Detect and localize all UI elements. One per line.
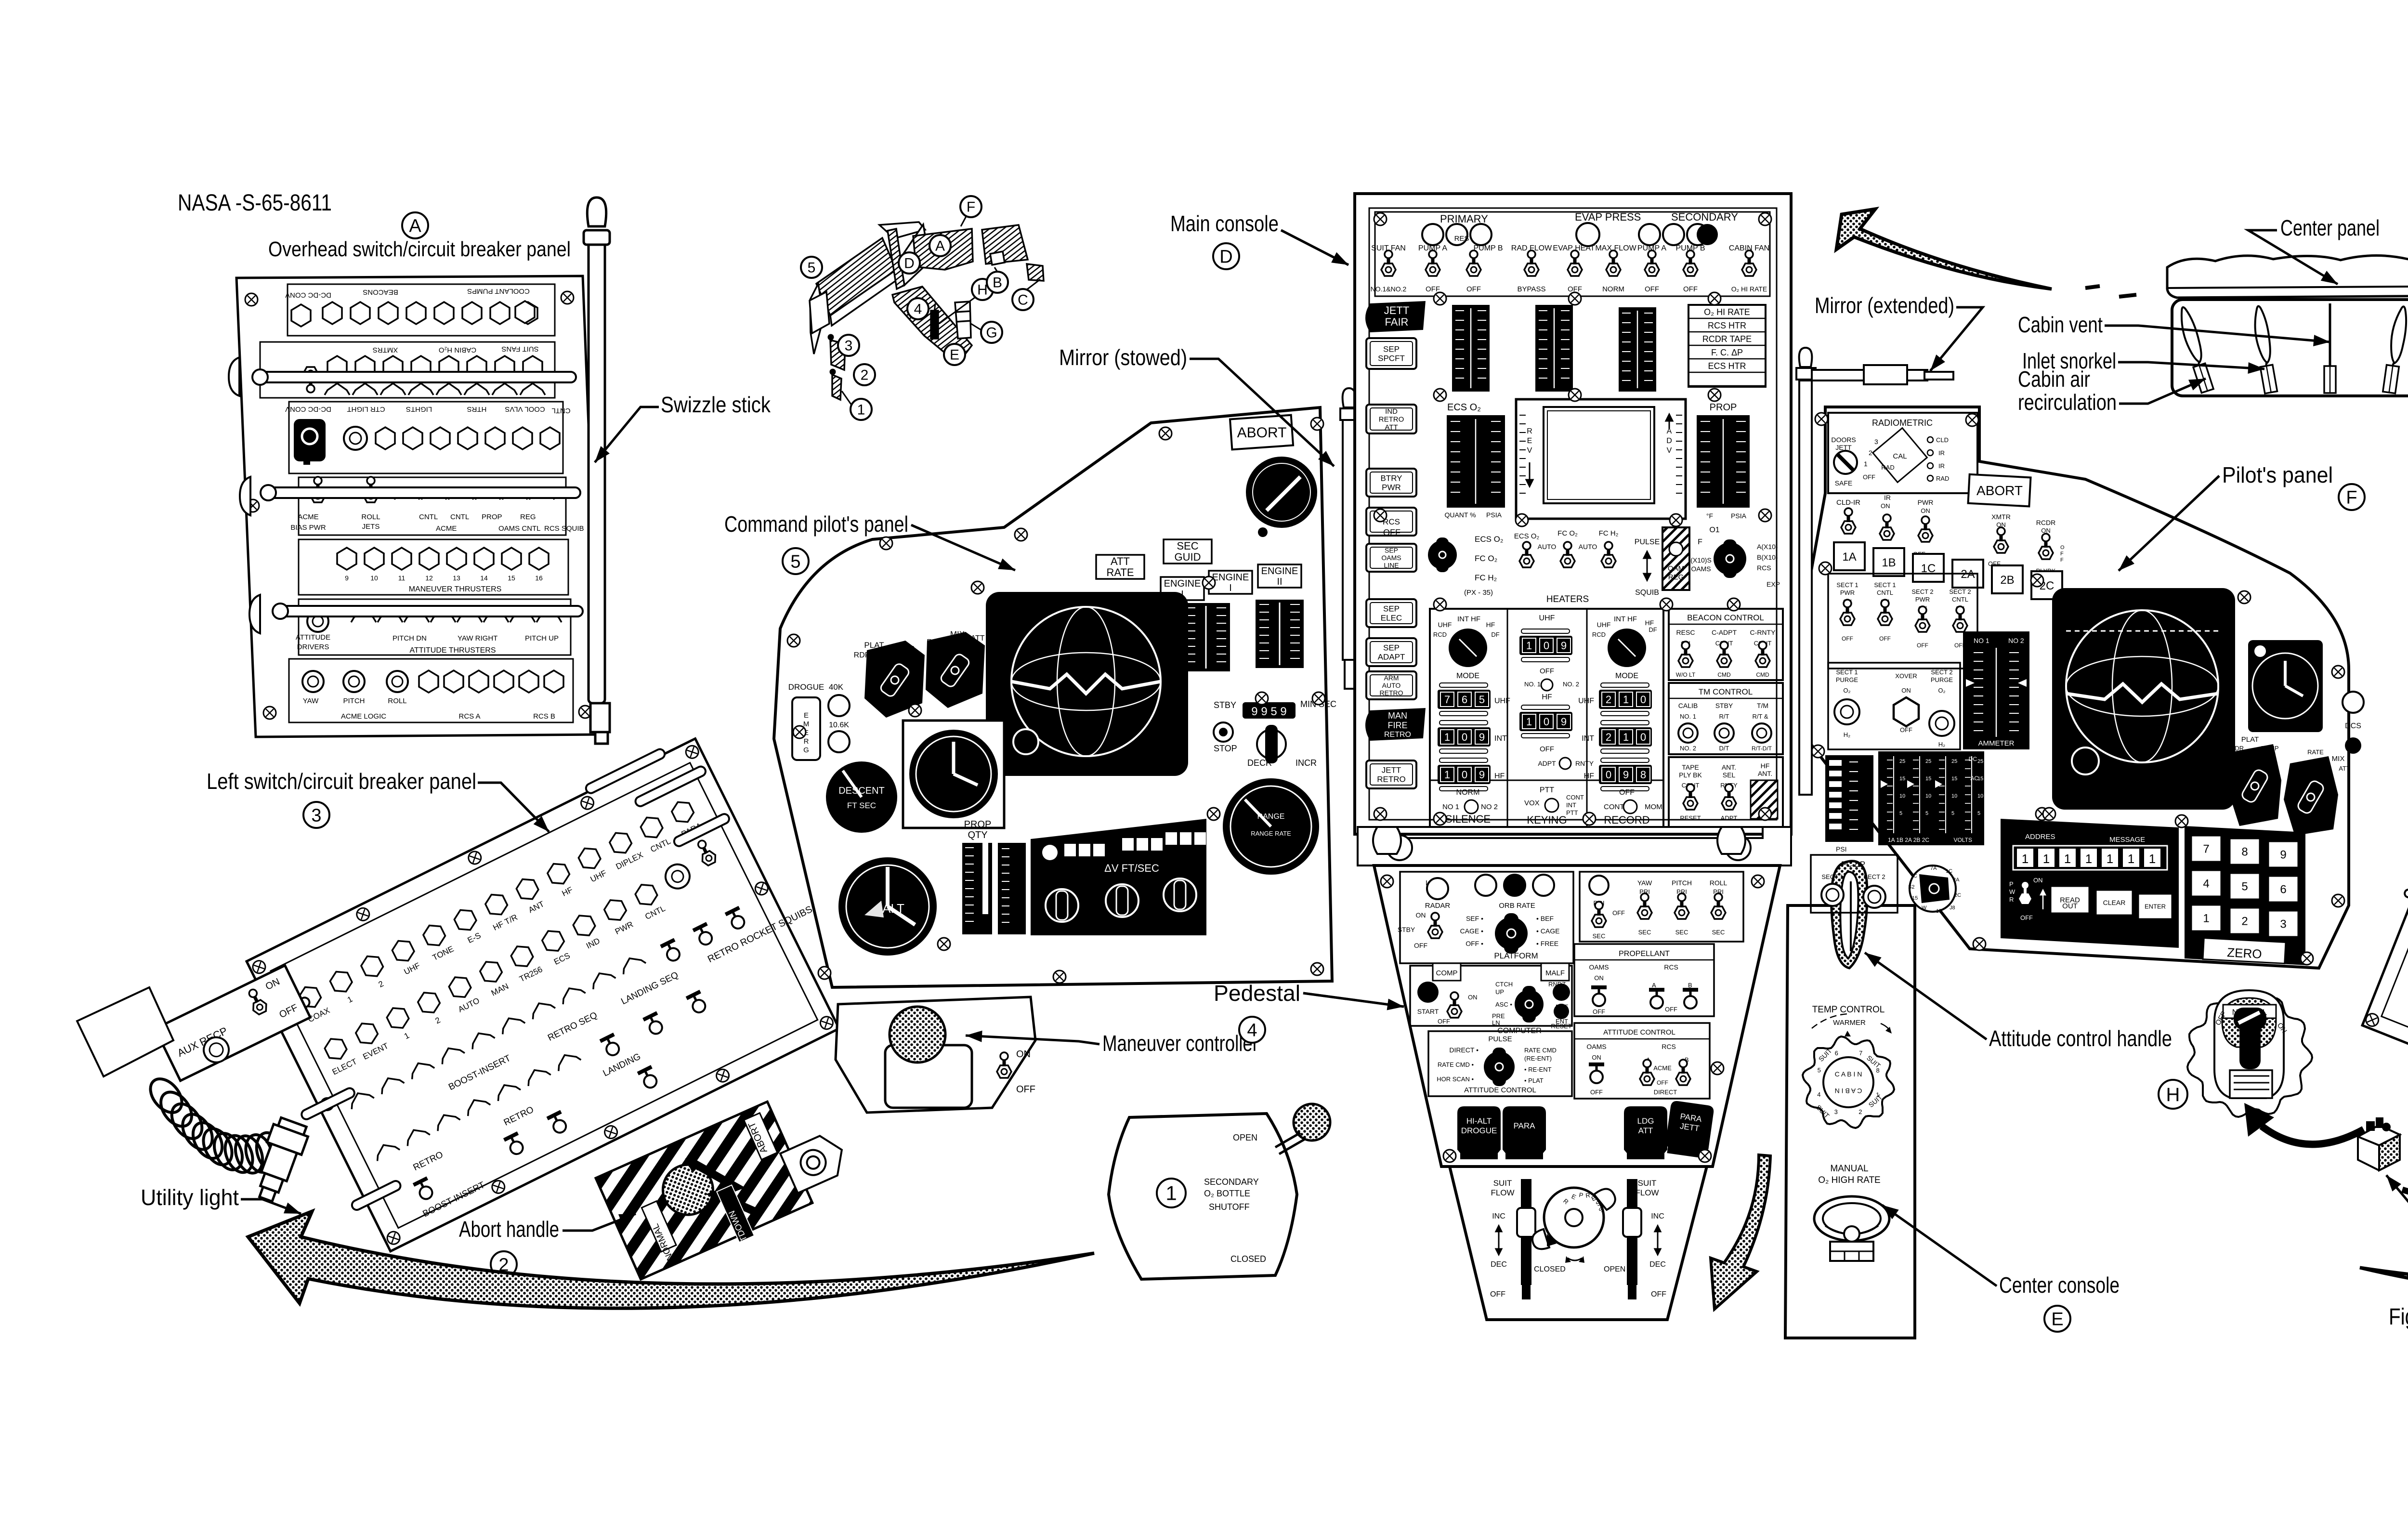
svg-text:OAMS: OAMS <box>1589 963 1609 971</box>
svg-text:DESCENT: DESCENT <box>838 786 885 796</box>
svg-text:STBY: STBY <box>1715 702 1733 709</box>
svg-text:PITCH: PITCH <box>1672 879 1692 887</box>
svg-text:6: 6 <box>1835 1049 1838 1057</box>
svg-text:PLAT: PLAT <box>2241 735 2259 744</box>
svg-text:PUMP A: PUMP A <box>1637 244 1667 252</box>
svg-text:OFF: OFF <box>1665 1006 1677 1013</box>
svg-text:FLOW: FLOW <box>1635 1188 1659 1197</box>
svg-text:1: 1 <box>2128 852 2134 866</box>
svg-text:ADPT: ADPT <box>1538 760 1556 767</box>
svg-text:4: 4 <box>1817 1091 1820 1098</box>
svg-text:1A: 1A <box>1842 551 1856 564</box>
svg-text:CNTL: CNTL <box>551 406 570 415</box>
svg-text:SEP: SEP <box>1385 547 1398 554</box>
svg-text:UHF: UHF <box>1539 614 1555 622</box>
svg-text:ATTITUDE CONTROL: ATTITUDE CONTROL <box>1603 1028 1675 1036</box>
svg-text:ON: ON <box>1416 911 1426 919</box>
svg-text:OFF: OFF <box>1657 1079 1668 1086</box>
svg-text:NO. 2: NO. 2 <box>1680 745 1696 752</box>
svg-text:DEC: DEC <box>1491 1260 1507 1269</box>
svg-text:BTRY: BTRY <box>1380 474 1402 483</box>
svg-text:OUT: OUT <box>2062 902 2078 910</box>
svg-text:2: 2 <box>861 367 869 383</box>
svg-text:INCR: INCR <box>1296 758 1317 768</box>
svg-text:C-RNTY: C-RNTY <box>1750 629 1776 636</box>
svg-text:AUTO: AUTO <box>1579 543 1597 551</box>
svg-text:0: 0 <box>1544 640 1549 652</box>
svg-text:recirculation: recirculation <box>2018 390 2117 415</box>
svg-text:SUIT FAN: SUIT FAN <box>1371 244 1406 252</box>
svg-text:ECS O₂: ECS O₂ <box>1475 535 1504 544</box>
svg-text:ZERO: ZERO <box>2227 945 2263 961</box>
svg-text:1: 1 <box>1526 640 1532 652</box>
svg-text:H₂: H₂ <box>1844 731 1850 738</box>
svg-text:PURGE: PURGE <box>1931 676 1953 683</box>
svg-text:OFF: OFF <box>1383 528 1400 538</box>
svg-text:7: 7 <box>1444 694 1450 706</box>
svg-text:MANUAL: MANUAL <box>1830 1164 1868 1174</box>
svg-text:1B: 1B <box>1882 556 1896 569</box>
svg-text:DROGUE: DROGUE <box>788 682 824 692</box>
svg-text:O: O <box>2060 545 2065 551</box>
svg-text:SECT 1: SECT 1 <box>1821 873 1843 880</box>
svg-text:12: 12 <box>425 574 433 582</box>
svg-text:YAW: YAW <box>303 697 319 705</box>
svg-text:RANGE RATE: RANGE RATE <box>1251 830 1291 837</box>
svg-text:BEACON CONTROL: BEACON CONTROL <box>1687 613 1764 622</box>
svg-text:ON: ON <box>1881 502 1890 510</box>
svg-text:13: 13 <box>453 574 460 582</box>
svg-text:1: 1 <box>2085 852 2092 866</box>
svg-text:OAMS: OAMS <box>1691 565 1711 573</box>
svg-text:O₂ HIGH RATE: O₂ HIGH RATE <box>1818 1175 1880 1185</box>
svg-text:D: D <box>1219 247 1232 267</box>
svg-text:ATTITUDE: ATTITUDE <box>296 633 330 642</box>
svg-text:IND: IND <box>1385 407 1398 416</box>
svg-text:DRIVERS: DRIVERS <box>297 643 329 651</box>
svg-text:AUTO: AUTO <box>1538 543 1557 551</box>
svg-text:1A 1B 2A 2B 2C: 1A 1B 2A 2B 2C <box>1888 837 1929 843</box>
svg-text:1: 1 <box>1444 769 1450 781</box>
svg-text:OFF: OFF <box>1842 635 1853 642</box>
svg-text:REG: REG <box>1668 573 1684 581</box>
svg-text:ABORT: ABORT <box>1237 425 1287 441</box>
svg-text:5: 5 <box>1977 811 1980 816</box>
svg-text:16: 16 <box>535 574 543 582</box>
svg-text:Cabin vent: Cabin vent <box>2018 312 2103 337</box>
svg-text:XMTR: XMTR <box>1991 513 2011 521</box>
svg-text:ATT: ATT <box>1638 1126 1653 1135</box>
svg-text:OFF •: OFF • <box>1466 940 1483 947</box>
svg-text:1: 1 <box>857 402 865 418</box>
svg-text:CNTL: CNTL <box>1877 589 1893 596</box>
svg-text:ANT.: ANT. <box>1722 763 1736 771</box>
svg-text:FAIR: FAIR <box>1385 316 1409 328</box>
svg-text:AUTO: AUTO <box>1382 682 1401 689</box>
svg-text:RETRO: RETRO <box>1384 731 1411 739</box>
svg-text:CMD: CMD <box>1717 671 1731 678</box>
svg-text:PUMP B: PUMP B <box>1675 244 1705 252</box>
svg-text:Utility light: Utility light <box>141 1185 239 1210</box>
svg-text:KEYING: KEYING <box>1527 814 1567 826</box>
svg-text:INC: INC <box>1492 1212 1505 1220</box>
svg-text:0: 0 <box>1606 769 1611 781</box>
svg-text:BIAS PWR: BIAS PWR <box>290 524 326 532</box>
svg-text:TEMP CONTROL: TEMP CONTROL <box>1812 1005 1885 1015</box>
svg-text:CLD-IR: CLD-IR <box>1836 498 1860 507</box>
svg-text:MODE: MODE <box>1456 672 1479 680</box>
svg-text:OFF: OFF <box>1645 285 1659 293</box>
svg-text:RATE: RATE <box>927 638 946 646</box>
svg-text:PULSE: PULSE <box>1488 1035 1512 1043</box>
svg-text:PUMP B: PUMP B <box>1473 244 1503 252</box>
svg-text:SEF •: SEF • <box>1466 915 1483 922</box>
svg-text:ARM: ARM <box>1384 674 1399 682</box>
svg-text:XOVER: XOVER <box>1895 672 1917 680</box>
svg-text:GUID: GUID <box>1175 551 1201 563</box>
svg-text:C: C <box>1913 873 1917 879</box>
svg-text:G: G <box>803 746 809 754</box>
svg-text:OFF: OFF <box>1540 667 1554 675</box>
svg-text:ATT: ATT <box>1385 423 1398 432</box>
svg-text:DCS: DCS <box>2345 722 2361 730</box>
svg-text:1: 1 <box>2022 852 2028 866</box>
svg-text:SEC: SEC <box>1712 929 1725 936</box>
svg-text:10: 10 <box>1925 793 1931 799</box>
svg-text:PROP: PROP <box>964 819 992 830</box>
svg-text:DROGUE: DROGUE <box>1461 1126 1497 1135</box>
svg-text:MIX: MIX <box>950 629 965 639</box>
svg-text:B(X10): B(X10) <box>1757 553 1778 561</box>
svg-text:NO. 1: NO. 1 <box>1680 713 1696 720</box>
svg-text:RETRO: RETRO <box>1380 689 1403 696</box>
svg-text:9: 9 <box>1561 716 1567 728</box>
svg-text:3: 3 <box>845 338 853 354</box>
svg-text:EXP: EXP <box>1767 580 1780 588</box>
svg-text:PITCH DN: PITCH DN <box>393 634 427 642</box>
svg-text:ADAPT: ADAPT <box>1378 652 1405 661</box>
svg-text:STBY: STBY <box>1398 926 1415 933</box>
svg-text:LIGHTS: LIGHTS <box>406 405 432 413</box>
svg-text:25: 25 <box>1925 759 1931 764</box>
svg-text:Command pilot's panel: Command pilot's panel <box>724 511 908 537</box>
svg-text:9: 9 <box>1561 640 1567 652</box>
svg-text:H₂: H₂ <box>1938 741 1945 748</box>
svg-text:VOX: VOX <box>1524 799 1540 807</box>
svg-text:15: 15 <box>1925 776 1931 782</box>
svg-text:UHF: UHF <box>1578 697 1594 705</box>
svg-text:R/T &: R/T & <box>1753 713 1768 720</box>
svg-text:W/O LT: W/O LT <box>1676 671 1696 678</box>
svg-text:PROP: PROP <box>482 513 502 521</box>
svg-text:CNTL: CNTL <box>450 513 469 521</box>
svg-text:IR: IR <box>1884 494 1891 501</box>
svg-text:OFF: OFF <box>1863 473 1875 481</box>
svg-text:2: 2 <box>1606 694 1611 706</box>
svg-text:XMTRS: XMTRS <box>373 346 398 354</box>
svg-text:RESET: RESET <box>1680 814 1701 822</box>
svg-text:COMP: COMP <box>1436 969 1458 977</box>
svg-text:RNTY: RNTY <box>1575 760 1594 767</box>
svg-text:ENTER: ENTER <box>2145 903 2166 910</box>
svg-text:ADDRES: ADDRES <box>2025 833 2055 841</box>
svg-text:SECONDARY: SECONDARY <box>1204 1177 1259 1187</box>
svg-text:SEL: SEL <box>1723 771 1736 779</box>
svg-text:9: 9 <box>1479 769 1485 781</box>
svg-text:FC O₂: FC O₂ <box>1557 529 1578 538</box>
svg-text:P: P <box>2009 880 2014 888</box>
svg-text:9: 9 <box>2280 848 2286 861</box>
svg-text:OFF: OFF <box>1590 1088 1603 1096</box>
svg-text:PARA: PARA <box>1513 1121 1535 1130</box>
svg-text:OFF: OFF <box>1490 1290 1505 1298</box>
svg-text:FLOW: FLOW <box>1491 1188 1514 1197</box>
svg-text:DOORS: DOORS <box>1831 436 1856 444</box>
svg-text:PLAT: PLAT <box>864 641 884 650</box>
svg-text:UHF: UHF <box>1597 621 1611 629</box>
svg-text:OFF: OFF <box>1540 745 1554 753</box>
svg-text:ABORT: ABORT <box>1976 483 2023 498</box>
svg-text:ON: ON <box>1921 507 1930 514</box>
svg-text:ATTITUDE CONTROL: ATTITUDE CONTROL <box>1464 1086 1536 1094</box>
svg-text:ON: ON <box>1594 974 1604 982</box>
svg-text:(PX - 35): (PX - 35) <box>1464 589 1493 597</box>
svg-text:RCD: RCD <box>1592 631 1606 638</box>
svg-text:10: 10 <box>370 574 378 582</box>
svg-text:NO 1: NO 1 <box>1974 637 1989 644</box>
svg-text:F: F <box>2060 557 2064 563</box>
svg-text:RAD: RAD <box>1936 475 1949 482</box>
svg-text:TAPE: TAPE <box>1682 763 1699 771</box>
svg-text:SEP: SEP <box>1383 643 1400 653</box>
svg-text:HF: HF <box>1584 772 1595 780</box>
svg-text:RESC: RESC <box>1676 629 1695 636</box>
svg-text:NO 2: NO 2 <box>1481 803 1498 811</box>
svg-text:F: F <box>1698 538 1702 546</box>
svg-text:Maneuver controller: Maneuver controller <box>1102 1031 1258 1056</box>
svg-text:J8: J8 <box>1950 905 1955 911</box>
svg-text:OFF: OFF <box>1651 1290 1666 1298</box>
svg-text:ROLL: ROLL <box>1710 879 1727 887</box>
svg-text:10: 10 <box>1899 793 1905 799</box>
svg-text:W: W <box>2009 888 2015 895</box>
svg-text:9: 9 <box>345 574 349 582</box>
svg-text:SPCFT: SPCFT <box>1378 354 1405 363</box>
svg-text:3: 3 <box>1834 1108 1838 1115</box>
svg-text:MESSAGE: MESSAGE <box>2109 836 2145 844</box>
svg-text:B: B <box>1688 982 1692 989</box>
svg-text:2C: 2C <box>1954 892 1961 898</box>
svg-text:ROLL: ROLL <box>388 697 406 705</box>
svg-text:COMP: COMP <box>891 645 915 653</box>
svg-text:10: 10 <box>1977 793 1983 799</box>
svg-text:1: 1 <box>1444 731 1450 743</box>
svg-text:ENGINE: ENGINE <box>1261 566 1298 577</box>
svg-text:SEC: SEC <box>1177 540 1198 552</box>
svg-text:PURGE: PURGE <box>1836 676 1858 683</box>
svg-text:OFF: OFF <box>1414 942 1427 949</box>
svg-text:Pedestal: Pedestal <box>1214 981 1300 1006</box>
svg-text:R/T-D/T: R/T-D/T <box>1752 745 1772 752</box>
svg-text:PRE: PRE <box>1492 1012 1505 1020</box>
svg-text:(RE-ENT): (RE-ENT) <box>1524 1055 1552 1062</box>
svg-text:JETT: JETT <box>1384 304 1410 316</box>
svg-text:RESET: RESET <box>1551 1023 1571 1030</box>
svg-text:PTT: PTT <box>1540 786 1554 794</box>
svg-text:PLY BK: PLY BK <box>1679 771 1702 779</box>
svg-text:1: 1 <box>1623 731 1629 743</box>
svg-text:HF: HF <box>1494 772 1505 780</box>
svg-text:O₂: O₂ <box>1938 687 1945 694</box>
svg-text:BYPASS: BYPASS <box>1518 285 1546 293</box>
svg-text:RES: RES <box>1454 235 1469 243</box>
svg-text:NO.1&NO.2: NO.1&NO.2 <box>1371 285 1407 293</box>
svg-text:CABIN H₂O: CABIN H₂O <box>439 346 476 354</box>
svg-text:PSIA: PSIA <box>1731 512 1747 520</box>
svg-text:5: 5 <box>1951 811 1954 816</box>
svg-text:RAD: RAD <box>1881 464 1894 471</box>
svg-text:CONT: CONT <box>1566 794 1584 801</box>
svg-text:0: 0 <box>1640 694 1646 706</box>
svg-text:15: 15 <box>1912 895 1918 901</box>
svg-text:YAW RIGHT: YAW RIGHT <box>458 634 497 642</box>
svg-text:SAFE: SAFE <box>1835 479 1853 487</box>
svg-text:HOR SCAN •: HOR SCAN • <box>1437 1075 1474 1083</box>
svg-text:1: 1 <box>1526 716 1532 728</box>
svg-text:O₂: O₂ <box>1843 687 1850 694</box>
svg-text:1B: 1B <box>1936 908 1942 914</box>
svg-text:0: 0 <box>1640 731 1646 743</box>
svg-text:9 9 5 9: 9 9 5 9 <box>1251 705 1286 718</box>
svg-text:C A B I N: C A B I N <box>1835 1087 1862 1095</box>
svg-text:SILENCE: SILENCE <box>1445 813 1491 825</box>
svg-text:RCS: RCS <box>1662 1043 1676 1050</box>
svg-text:SECT 1: SECT 1 <box>1874 581 1896 589</box>
svg-text:• CAGE: • CAGE <box>1536 927 1559 935</box>
svg-text:UHF: UHF <box>1438 621 1452 629</box>
svg-text:RATE: RATE <box>2307 748 2324 756</box>
svg-text:DECR: DECR <box>1247 758 1272 768</box>
svg-text:SUIT: SUIT <box>1493 1179 1512 1188</box>
svg-text:LDG: LDG <box>1637 1116 1654 1126</box>
svg-text:OPEN: OPEN <box>1604 1265 1625 1273</box>
svg-text:OAMS: OAMS <box>1586 1043 1606 1050</box>
svg-text:5: 5 <box>1818 1066 1821 1074</box>
svg-text:Attitude control handle: Attitude control handle <box>1989 1026 2172 1051</box>
svg-text:RDR: RDR <box>2230 745 2244 752</box>
svg-text:HTRS: HTRS <box>467 405 487 413</box>
svg-text:D: D <box>904 256 915 272</box>
svg-text:OFF: OFF <box>1683 285 1698 293</box>
svg-text:PSIA: PSIA <box>1486 511 1502 519</box>
svg-text:5: 5 <box>2241 880 2248 893</box>
svg-text:JETT: JETT <box>1382 766 1401 775</box>
svg-text:V: V <box>1527 446 1532 455</box>
svg-text:NO 1: NO 1 <box>1442 803 1459 811</box>
svg-text:O₂ BOTTLE: O₂ BOTTLE <box>1204 1189 1250 1198</box>
svg-text:1: 1 <box>2149 852 2156 866</box>
svg-text:15: 15 <box>508 574 515 582</box>
svg-text:DF: DF <box>1491 631 1499 638</box>
svg-text:F: F <box>967 199 975 215</box>
svg-text:RATE CMD: RATE CMD <box>1524 1047 1557 1054</box>
svg-text:CAL: CAL <box>1893 452 1907 460</box>
svg-text:4: 4 <box>2203 877 2209 890</box>
svg-text:SECT 2: SECT 2 <box>1911 588 1933 595</box>
svg-text:CLOSED: CLOSED <box>1534 1265 1566 1273</box>
svg-text:PLATFORM: PLATFORM <box>1494 951 1538 960</box>
svg-text:FC H₂: FC H₂ <box>1475 573 1497 582</box>
svg-text:MALF: MALF <box>1545 969 1565 977</box>
svg-text:PSI: PSI <box>1836 845 1847 853</box>
svg-text:(X10)S: (X10)S <box>1690 556 1712 564</box>
svg-text:A: A <box>1652 982 1656 989</box>
svg-text:NO. 2: NO. 2 <box>1563 681 1579 688</box>
svg-text:14: 14 <box>480 574 488 582</box>
svg-text:0: 0 <box>1462 769 1467 781</box>
svg-text:1: 1 <box>1876 1091 1879 1099</box>
svg-text:ATTITUDE THRUSTERS: ATTITUDE THRUSTERS <box>410 646 496 655</box>
svg-text:OFF: OFF <box>1917 642 1928 649</box>
svg-text:ENGINE: ENGINE <box>1164 578 1201 589</box>
svg-text:1: 1 <box>1165 1182 1177 1205</box>
svg-text:F. C. ΔP: F. C. ΔP <box>1711 348 1743 357</box>
svg-text:Figure 3.1-8. - Spacecraft con: Figure 3.1-8. - Spacecraft controls and … <box>2389 1304 2408 1330</box>
svg-text:BEACONS: BEACONS <box>363 288 398 296</box>
svg-text:2B: 2B <box>2000 574 2014 587</box>
svg-text:RCS: RCS <box>1757 564 1771 572</box>
svg-text:ATT: ATT <box>970 634 984 642</box>
svg-text:RECORD: RECORD <box>1604 814 1649 826</box>
svg-text:Overhead switch/circuit breake: Overhead switch/circuit breaker panel <box>268 237 571 261</box>
svg-text:CNTL: CNTL <box>419 513 438 521</box>
svg-text:RDR: RDR <box>854 651 871 659</box>
svg-text:CABIN FAN: CABIN FAN <box>1729 244 1769 252</box>
svg-text:RATE CMD •: RATE CMD • <box>1438 1061 1474 1068</box>
svg-text:E: E <box>2051 1309 2063 1329</box>
svg-text:15: 15 <box>1951 776 1957 782</box>
svg-text:RCDR TAPE: RCDR TAPE <box>1702 334 1752 344</box>
svg-text:CONT: CONT <box>1604 803 1624 811</box>
svg-text:SEP: SEP <box>1383 604 1400 614</box>
svg-text:CMD: CMD <box>1756 671 1769 678</box>
svg-text:3: 3 <box>311 805 321 826</box>
svg-text:11: 11 <box>398 574 406 582</box>
svg-text:25: 25 <box>1899 759 1905 764</box>
svg-text:OFF: OFF <box>1466 285 1481 293</box>
svg-text:STOP: STOP <box>1214 744 1237 753</box>
svg-text:1: 1 <box>1864 460 1868 468</box>
svg-text:PITCH: PITCH <box>343 697 365 705</box>
svg-text:R: R <box>804 737 809 746</box>
svg-text:OAMS: OAMS <box>1381 554 1401 562</box>
svg-text:PULSE: PULSE <box>1635 538 1660 546</box>
svg-text:RCS SQUIB: RCS SQUIB <box>544 524 584 533</box>
svg-text:DEC: DEC <box>1649 1260 1666 1269</box>
svg-text:CLOSED: CLOSED <box>1230 1254 1266 1264</box>
svg-text:4: 4 <box>914 302 922 317</box>
svg-text:RETRO: RETRO <box>1377 774 1406 784</box>
svg-text:5: 5 <box>1899 811 1902 816</box>
svg-text:MANEUVER THRUSTERS: MANEUVER THRUSTERS <box>409 585 502 593</box>
svg-text:PWR: PWR <box>1382 483 1401 492</box>
svg-text:2: 2 <box>1869 449 1872 457</box>
svg-text:O₂ HI RATE: O₂ HI RATE <box>1731 285 1767 293</box>
svg-text:°F: °F <box>1706 512 1713 520</box>
svg-text:MAX FLOW: MAX FLOW <box>1595 244 1636 252</box>
svg-text:SHUTOFF: SHUTOFF <box>1209 1202 1250 1212</box>
svg-text:PWR: PWR <box>1840 589 1855 596</box>
